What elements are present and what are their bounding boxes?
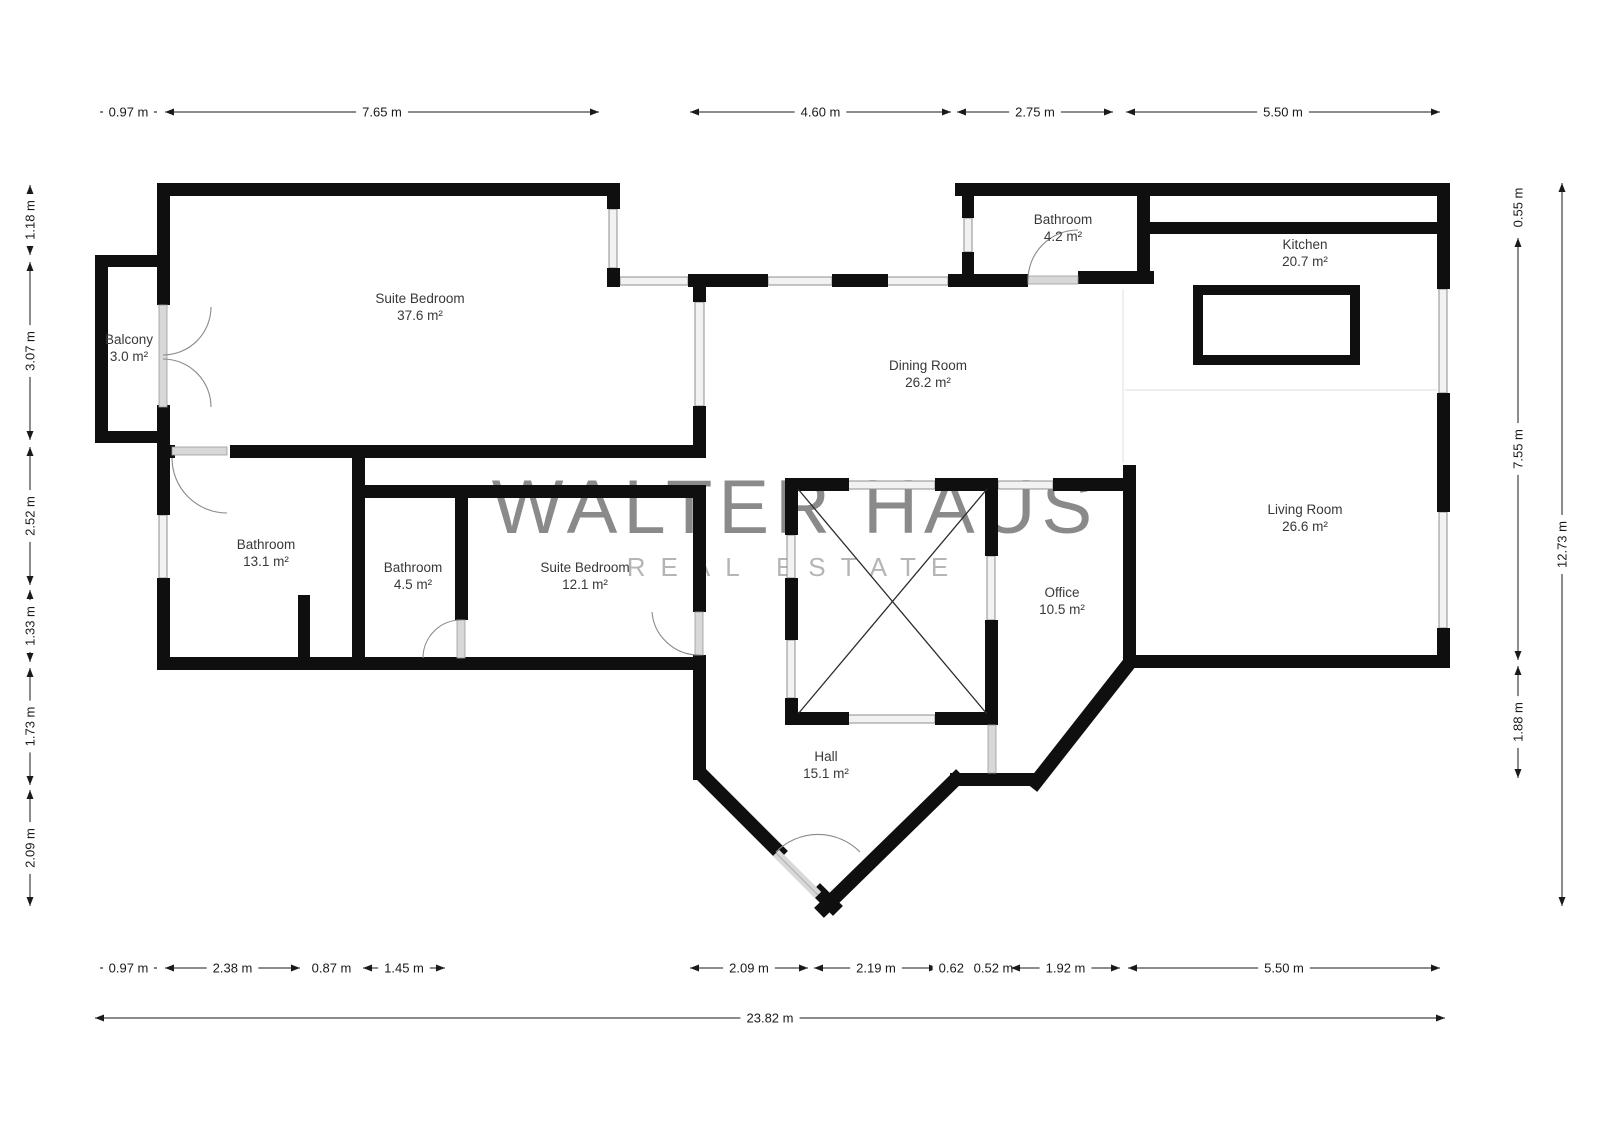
floorplan: WALTER HAUS REAL ESTATE Suite Bedroom37.… [0,0,1600,1132]
dimension: 5.50 m [1126,104,1440,121]
svg-text:2.52 m: 2.52 m [23,496,38,536]
svg-text:0.97 m: 0.97 m [109,105,149,120]
svg-text:2.75 m: 2.75 m [1015,105,1055,120]
kitchen-island [1193,285,1360,365]
svg-text:1.92 m: 1.92 m [1046,961,1086,976]
dimension: 2.09 m [690,960,808,977]
svg-text:0.87 m: 0.87 m [312,961,352,976]
room-label: Dining Room26.2 m² [889,358,967,390]
dimension: 1.18 m [22,185,39,255]
floorplan-drawing: Suite Bedroom37.6 m²Balcony3.0 m²Bathroo… [0,0,1600,1132]
svg-text:2.09 m: 2.09 m [23,828,38,868]
dimension: 1.92 m [1011,960,1120,977]
dimension: 4.60 m [690,104,951,121]
dimension: 2.09 m [22,790,39,906]
dimension: 1.45 m [363,960,445,977]
svg-text:0.52 m: 0.52 m [974,961,1014,976]
svg-text:12.73 m: 12.73 m [1555,521,1570,568]
svg-text:0.97 m: 0.97 m [109,961,149,976]
svg-text:23.82 m: 23.82 m [747,1011,794,1026]
dimension: 12.73 m [1554,183,1571,906]
dimension: 2.52 m [22,447,39,585]
room-label: Hall15.1 m² [803,749,849,781]
svg-text:1.33 m: 1.33 m [23,606,38,646]
room-label: Bathroom4.5 m² [384,560,443,592]
dimension: 3.07 m [22,262,39,440]
room-labels: Suite Bedroom37.6 m²Balcony3.0 m²Bathroo… [105,212,1343,781]
dimension: 0.87 m [306,960,358,977]
svg-text:5.50 m: 5.50 m [1264,961,1304,976]
svg-text:1.88 m: 1.88 m [1511,702,1526,742]
svg-text:0.55 m: 0.55 m [1511,188,1526,228]
svg-text:1.73 m: 1.73 m [23,707,38,747]
dimension: 2.19 m [814,960,938,977]
shaft-cross [798,489,987,714]
svg-text:3.07 m: 3.07 m [23,331,38,371]
room-label: Bathroom4.2 m² [1034,212,1093,244]
room-label: Living Room26.6 m² [1267,502,1342,534]
dimension: 0.97 m [100,104,157,121]
room-label: Bathroom13.1 m² [237,537,296,569]
svg-text:2.09 m: 2.09 m [729,961,769,976]
svg-text:2.19 m: 2.19 m [856,961,896,976]
svg-text:7.65 m: 7.65 m [362,105,402,120]
svg-text:2.38 m: 2.38 m [213,961,253,976]
room-label: Office10.5 m² [1039,585,1085,617]
svg-text:1.18 m: 1.18 m [23,200,38,240]
svg-text:1.45 m: 1.45 m [384,961,424,976]
dimension: 2.75 m [957,104,1113,121]
dimension: 7.65 m [165,104,599,121]
dimension: 5.50 m [1128,960,1440,977]
room-label: Suite Bedroom12.1 m² [540,560,629,592]
svg-text:4.60 m: 4.60 m [801,105,841,120]
room-label: Balcony3.0 m² [105,332,153,364]
dimension: 7.55 m [1510,238,1527,660]
dimension: 23.82 m [95,1010,1445,1027]
room-label: Suite Bedroom37.6 m² [375,291,464,323]
dimension: 1.73 m [22,668,39,785]
dimension: 2.38 m [165,960,300,977]
room-label: Kitchen20.7 m² [1282,237,1328,269]
dimension: 0.55 m [1510,182,1527,234]
dimension: 1.33 m [22,590,39,662]
dimension: 0.97 m [100,960,157,977]
dimension: 1.88 m [1510,666,1527,778]
svg-text:5.50 m: 5.50 m [1263,105,1303,120]
svg-text:7.55 m: 7.55 m [1511,429,1526,469]
